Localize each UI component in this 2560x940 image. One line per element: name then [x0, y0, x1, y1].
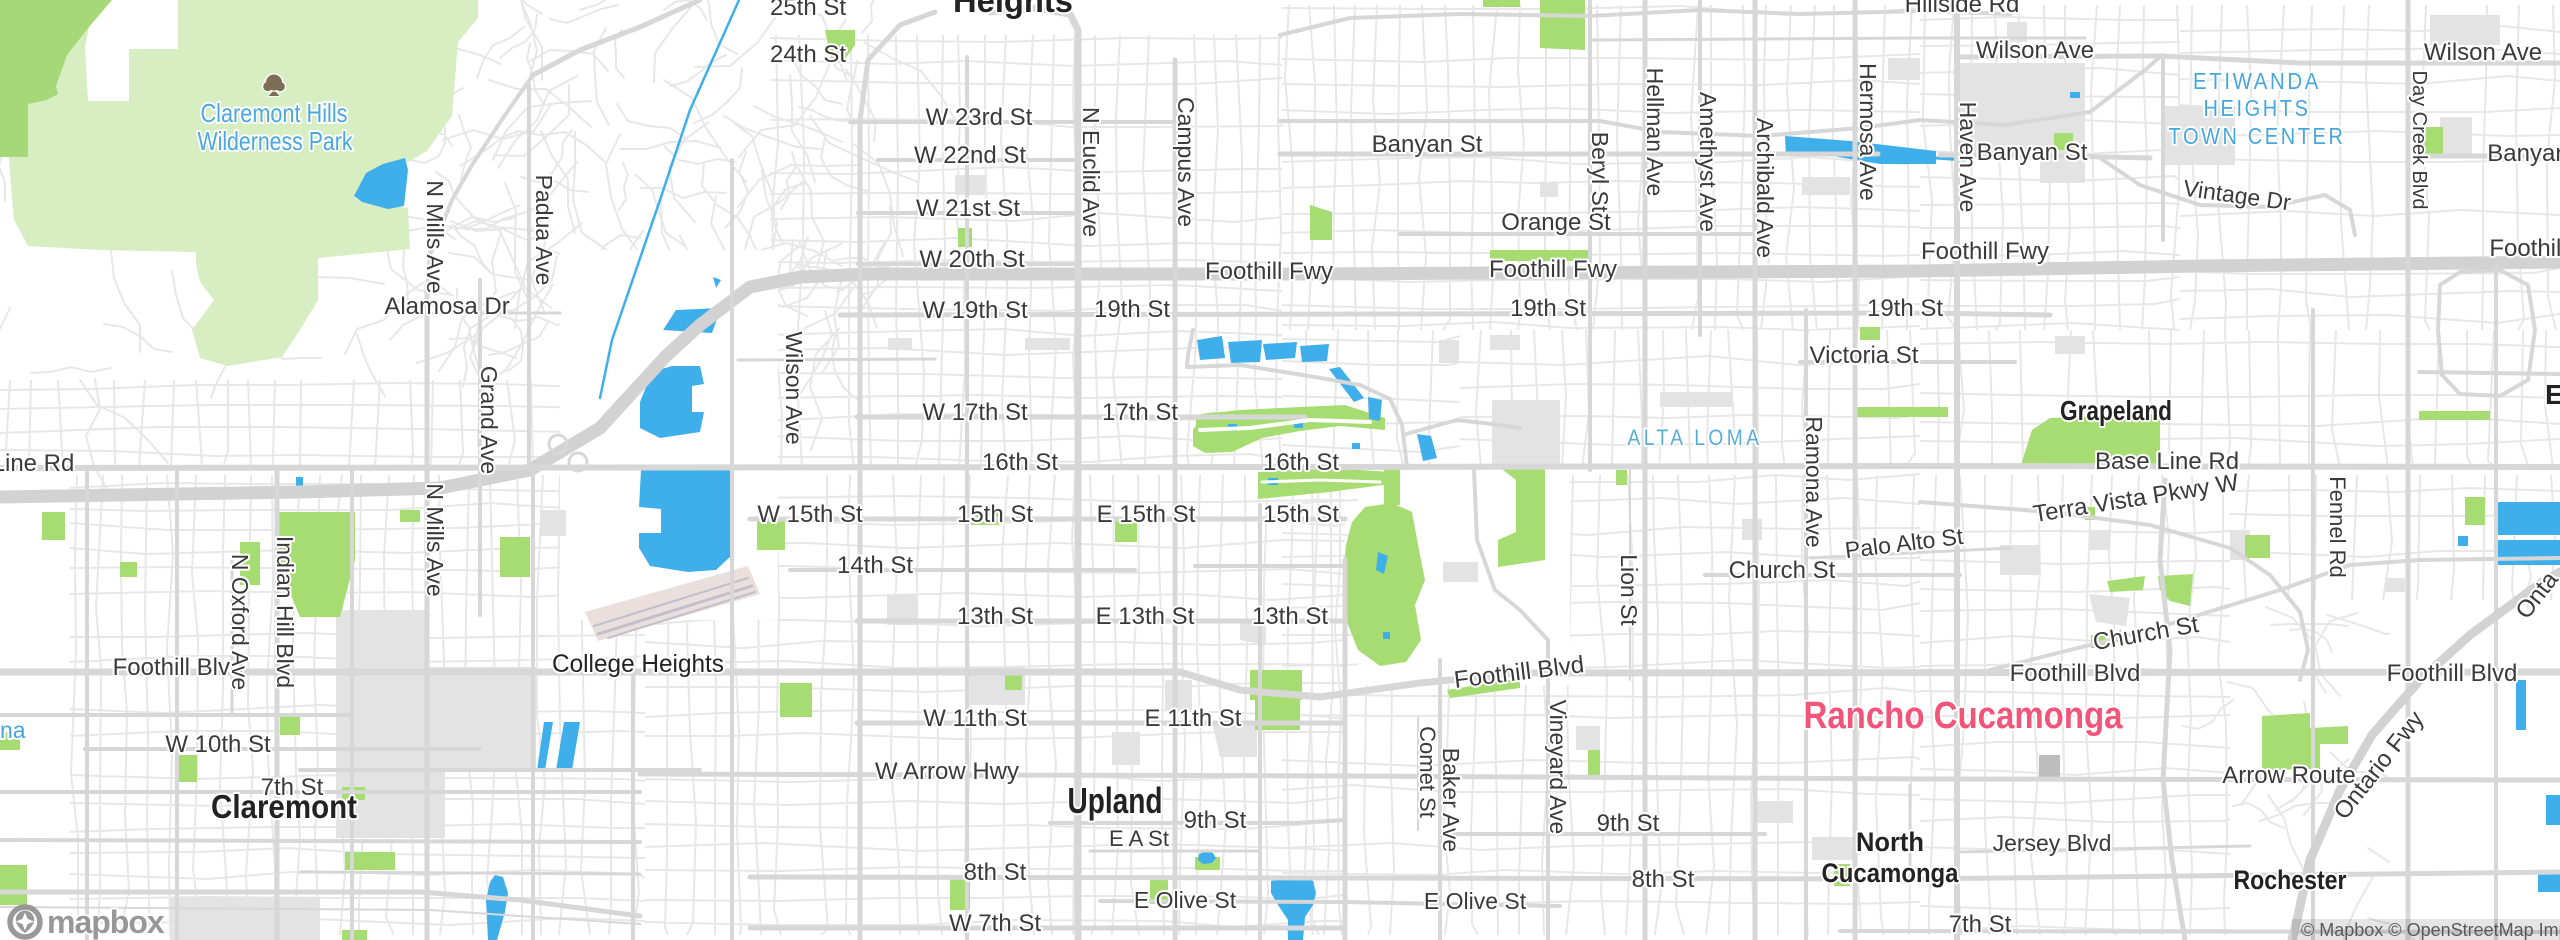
svg-text:North: North: [1856, 827, 1924, 857]
svg-text:Foothill Blvd: Foothill Blvd: [2387, 660, 2518, 687]
svg-text:© Mapbox © OpenStreetMap Impr: © Mapbox © OpenStreetMap Impr: [2301, 920, 2560, 940]
svg-text:Foothill: Foothill: [2489, 235, 2560, 262]
svg-text:Victoria St: Victoria St: [1810, 342, 1919, 369]
svg-text:W Arrow Hwy: W Arrow Hwy: [875, 758, 1019, 785]
svg-text:W 15th St: W 15th St: [757, 501, 863, 528]
svg-text:ALTA LOMA: ALTA LOMA: [1628, 425, 1763, 450]
svg-text:E 15th St: E 15th St: [1097, 501, 1196, 528]
svg-text:7th St: 7th St: [1949, 911, 2012, 938]
svg-text:HEIGHTS: HEIGHTS: [2204, 95, 2311, 121]
svg-text:9th St: 9th St: [1184, 807, 1247, 834]
svg-text:Orange St: Orange St: [1501, 209, 1611, 236]
svg-text:Banyan St: Banyan St: [1977, 139, 2088, 166]
svg-text:mapbox: mapbox: [47, 904, 165, 940]
svg-text:E 11th St: E 11th St: [1145, 705, 1242, 732]
svg-text:Campus Ave: Campus Ave: [1173, 97, 1199, 227]
svg-text:Upland: Upland: [1068, 780, 1163, 821]
svg-text:14th St: 14th St: [837, 552, 913, 579]
svg-text:W 23rd St: W 23rd St: [926, 104, 1033, 131]
svg-text:E Olive St: E Olive St: [1424, 888, 1527, 914]
svg-text:Foothill Blvd: Foothill Blvd: [2010, 660, 2141, 687]
svg-text:Base Line Rd: Base Line Rd: [2095, 448, 2239, 475]
svg-text:Foothill Fwy: Foothill Fwy: [1205, 258, 1333, 285]
svg-text:Archibald Ave: Archibald Ave: [1752, 118, 1778, 258]
svg-text:Line Rd: Line Rd: [0, 450, 74, 477]
svg-text:Hermosa Ave: Hermosa Ave: [1855, 63, 1881, 201]
svg-text:Hillside Rd: Hillside Rd: [1905, 0, 2020, 18]
svg-text:TOWN CENTER: TOWN CENTER: [2169, 123, 2346, 149]
svg-text:N Oxford Ave: N Oxford Ave: [227, 554, 253, 690]
svg-text:Amethyst Ave: Amethyst Ave: [1695, 92, 1721, 232]
svg-text:Baker Ave: Baker Ave: [1438, 748, 1464, 852]
svg-text:Banyan St: Banyan St: [1372, 131, 1483, 158]
svg-text:Wilderness Park: Wilderness Park: [198, 126, 354, 156]
svg-text:Etiw: Etiw: [2545, 379, 2560, 410]
svg-text:Wilson Ave: Wilson Ave: [781, 331, 807, 444]
svg-text:W 11th St: W 11th St: [923, 705, 1027, 732]
svg-text:25th St: 25th St: [770, 0, 846, 21]
svg-text:Vineyard Ave: Vineyard Ave: [1545, 700, 1571, 835]
svg-text:Claremont Hills: Claremont Hills: [201, 98, 348, 128]
svg-text:8th St: 8th St: [1632, 866, 1695, 893]
svg-text:15th St: 15th St: [957, 501, 1033, 528]
svg-text:W 10th St: W 10th St: [165, 731, 271, 758]
svg-text:Arrow Route: Arrow Route: [2222, 762, 2355, 789]
svg-text:Indian Hill Blvd: Indian Hill Blvd: [272, 536, 298, 688]
svg-text:Church St: Church St: [1729, 557, 1836, 584]
svg-text:Wilson Ave: Wilson Ave: [1976, 37, 2094, 64]
svg-text:Grand Ave: Grand Ave: [476, 366, 502, 474]
svg-text:13th St: 13th St: [1252, 603, 1328, 630]
svg-text:Foothill Fwy: Foothill Fwy: [1921, 238, 2049, 265]
svg-text:E A St: E A St: [1109, 826, 1169, 851]
svg-text:N Mills Ave: N Mills Ave: [422, 180, 448, 293]
svg-text:Hellman Ave: Hellman Ave: [1642, 68, 1668, 197]
svg-text:16th St: 16th St: [1263, 449, 1339, 476]
svg-text:Ramona Ave: Ramona Ave: [1801, 416, 1827, 547]
svg-text:W 20th St: W 20th St: [919, 246, 1025, 273]
svg-text:E 13th St: E 13th St: [1096, 603, 1195, 630]
svg-text:9th St: 9th St: [1597, 810, 1660, 837]
svg-text:College Heights: College Heights: [552, 650, 724, 678]
svg-text:N Mills Ave: N Mills Ave: [422, 483, 448, 596]
svg-text:Rancho Cucamonga: Rancho Cucamonga: [1804, 695, 2124, 737]
svg-text:Claremont: Claremont: [211, 788, 357, 825]
svg-text:Beryl St: Beryl St: [1587, 132, 1613, 213]
svg-text:na: na: [0, 717, 26, 743]
svg-text:W 22nd St: W 22nd St: [914, 142, 1026, 169]
svg-text:Lion St: Lion St: [1616, 554, 1642, 626]
svg-text:15th St: 15th St: [1263, 501, 1339, 528]
svg-text:13th St: 13th St: [957, 603, 1033, 630]
svg-text:Foothill Fwy: Foothill Fwy: [1489, 256, 1617, 283]
svg-text:Wilson Ave: Wilson Ave: [2424, 39, 2542, 66]
svg-text:19th St: 19th St: [1094, 296, 1170, 323]
svg-text:N Euclid Ave: N Euclid Ave: [1078, 107, 1104, 237]
svg-text:Day Creek Blvd: Day Creek Blvd: [2408, 71, 2430, 210]
svg-text:Haven Ave: Haven Ave: [1955, 102, 1981, 213]
svg-text:Banyan: Banyan: [2487, 140, 2560, 167]
svg-text:17th St: 17th St: [1102, 399, 1178, 426]
svg-text:Rochester: Rochester: [2234, 865, 2347, 895]
svg-text:Cucamonga: Cucamonga: [1822, 858, 1960, 888]
svg-text:Grapeland: Grapeland: [2060, 395, 2172, 426]
svg-text:Foothill Blvd: Foothill Blvd: [113, 654, 244, 681]
svg-text:19th St: 19th St: [1510, 295, 1586, 322]
svg-text:Comet St: Comet St: [1415, 726, 1440, 818]
svg-text:Padua Ave: Padua Ave: [531, 175, 557, 286]
svg-text:W 19th St: W 19th St: [922, 297, 1028, 324]
svg-text:Heights: Heights: [953, 0, 1073, 19]
svg-text:Fennel Rd: Fennel Rd: [2325, 476, 2350, 578]
svg-text:W 17th St: W 17th St: [922, 399, 1028, 426]
svg-text:8th St: 8th St: [964, 859, 1027, 886]
svg-text:19th St: 19th St: [1867, 295, 1943, 322]
svg-text:W 7th St: W 7th St: [949, 910, 1041, 937]
svg-text:Jersey Blvd: Jersey Blvd: [1993, 830, 2112, 856]
svg-text:W 21st St: W 21st St: [916, 195, 1020, 222]
svg-text:24th St: 24th St: [770, 41, 846, 68]
svg-text:16th St: 16th St: [982, 449, 1058, 476]
svg-text:E Olive St: E Olive St: [1134, 887, 1237, 913]
svg-text:ETIWANDA: ETIWANDA: [2193, 68, 2321, 94]
svg-text:Alamosa Dr: Alamosa Dr: [384, 293, 509, 320]
